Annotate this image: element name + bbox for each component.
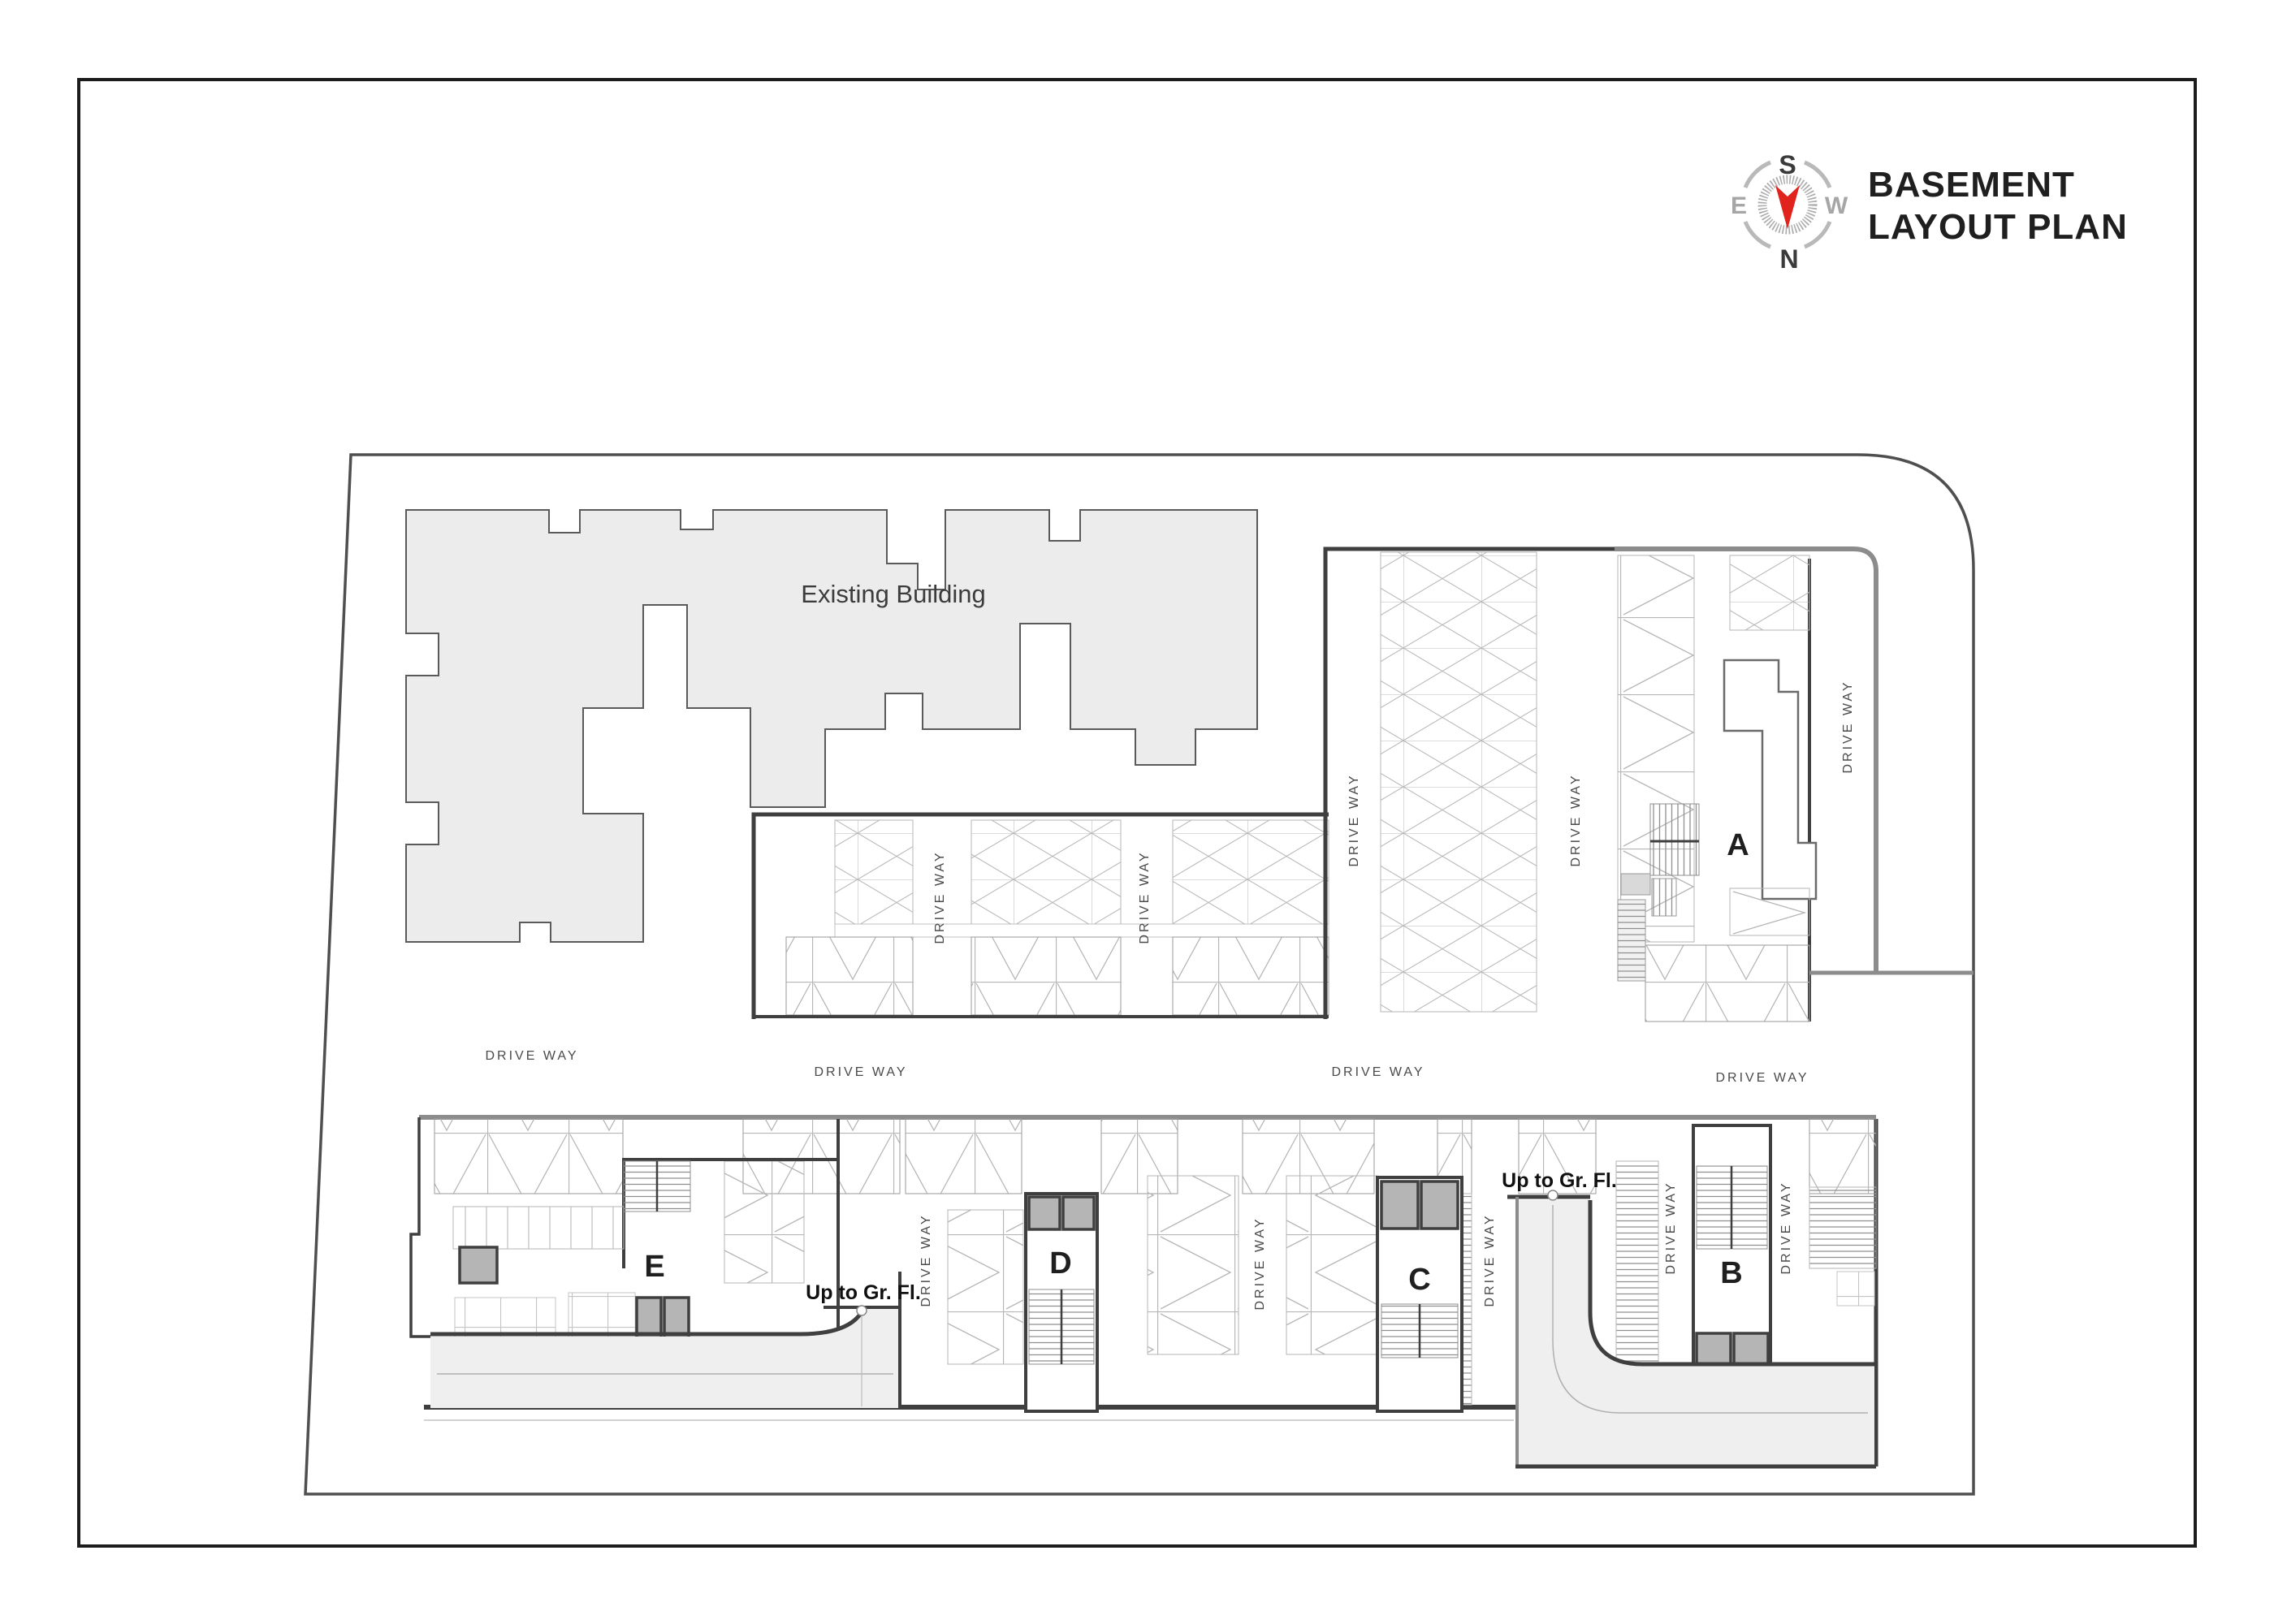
existing-building: Existing Building	[406, 510, 1257, 942]
up-to-gr-fl-label-b: Up to Gr. Fl.	[1502, 1169, 1617, 1192]
parking-bay	[1173, 820, 1329, 924]
drive-way-label: DRIVE WAY	[1715, 1071, 1809, 1085]
parking-column	[1148, 1176, 1239, 1354]
lift-c	[1381, 1181, 1418, 1229]
core-d-label: D	[1049, 1246, 1071, 1281]
parking-column	[724, 1161, 804, 1283]
drive-way-label: DRIVE WAY	[485, 1049, 578, 1063]
drive-way-label: DRIVE WAY	[1779, 1181, 1793, 1274]
parking-bay	[1381, 552, 1537, 1012]
parking-bay	[971, 820, 1121, 924]
drive-way-label: DRIVE WAY	[1841, 680, 1855, 773]
core-b-label: B	[1720, 1256, 1742, 1290]
central-drive-way: DRIVE WAY DRIVE WAY DRIVE WAY DRIVE WAY	[485, 1017, 1809, 1085]
ramp-e: Up to Gr. Fl.	[430, 1272, 921, 1408]
parking-row	[1809, 1119, 1876, 1194]
lift-e	[460, 1247, 497, 1283]
drive-way-label: DRIVE WAY	[1664, 1181, 1678, 1274]
lift-c	[1421, 1181, 1458, 1229]
north-parking-block: DRIVE WAY DRIVE WAY	[1325, 549, 1615, 1019]
basement-layout-plan-page: Existing Building DRIVE WAY DRIVE WAY DR…	[0, 0, 2274, 1624]
drive-way-label: DRIVE WAY	[1253, 1216, 1267, 1310]
core-b: B	[1693, 1125, 1770, 1392]
parking-row	[786, 937, 913, 1015]
upper-middle-parking: DRIVE WAY DRIVE WAY	[754, 814, 1329, 1019]
core-c: C	[1377, 1177, 1462, 1411]
lift-d	[1063, 1197, 1094, 1229]
drive-way-label: DRIVE WAY	[933, 850, 947, 944]
block-a: A DRIVE WAY	[1615, 549, 1974, 1021]
existing-building-label: Existing Building	[801, 580, 985, 608]
parking-row	[1645, 945, 1809, 1021]
floor-plan-svg: Existing Building DRIVE WAY DRIVE WAY DR…	[0, 0, 2274, 1624]
core-c-label: C	[1408, 1263, 1430, 1297]
parking-row	[971, 937, 1121, 1015]
drive-way-label: DRIVE WAY	[1138, 850, 1152, 944]
compass-letter-s: S	[1779, 150, 1796, 179]
parking-column	[1286, 1176, 1377, 1354]
parking-row	[1173, 937, 1329, 1015]
core-a-footprint	[1724, 660, 1816, 899]
compass-letter-w: W	[1825, 192, 1848, 219]
page-title: BASEMENT LAYOUT PLAN	[1868, 165, 2128, 247]
parking-bay	[835, 820, 913, 924]
drive-way-label: DRIVE WAY	[1483, 1213, 1497, 1307]
core-d: D	[1026, 1194, 1097, 1411]
parking-row	[453, 1207, 624, 1249]
parking-column	[1616, 1161, 1658, 1372]
compass-letter-e: E	[1731, 192, 1747, 219]
stairs-a-icon	[1650, 804, 1699, 875]
lift-d	[1029, 1197, 1060, 1229]
stairs-a-icon	[1652, 879, 1676, 916]
drive-way-label: DRIVE WAY	[1347, 773, 1361, 866]
title-line-1: BASEMENT	[1868, 165, 2075, 205]
compass-icon: S N E W	[1731, 150, 1848, 274]
ramp-marker-icon	[857, 1306, 867, 1315]
storage-grid	[1837, 1272, 1874, 1306]
parking-column	[1809, 1187, 1876, 1268]
drive-way-label: DRIVE WAY	[1569, 773, 1583, 866]
title-line-2: LAYOUT PLAN	[1868, 207, 2128, 247]
core-e-label: E	[644, 1250, 664, 1284]
parking-bay	[1730, 555, 1809, 630]
parking-row	[906, 1119, 1022, 1194]
drive-way-label: DRIVE WAY	[814, 1065, 907, 1079]
compass-letter-n: N	[1779, 244, 1798, 274]
wheel-stop-strip	[835, 924, 1329, 937]
parking-column	[948, 1210, 1023, 1364]
drive-way-label: DRIVE WAY	[1331, 1065, 1424, 1079]
up-to-gr-fl-label-e: Up to Gr. Fl.	[806, 1281, 921, 1304]
drive-way-label: DRIVE WAY	[919, 1213, 933, 1307]
lift-a	[1621, 874, 1650, 895]
parking-row	[434, 1119, 623, 1194]
core-a-label: A	[1727, 828, 1749, 862]
